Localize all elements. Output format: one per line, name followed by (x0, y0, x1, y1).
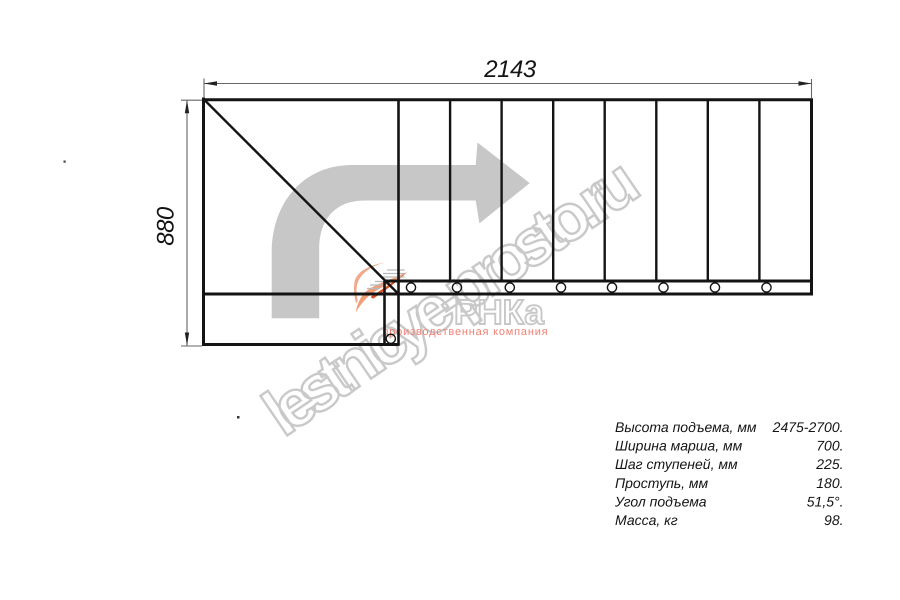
svg-text:2475-2700.: 2475-2700. (772, 419, 844, 435)
svg-text:700.: 700. (816, 438, 843, 454)
svg-text:Шаг ступеней, мм: Шаг ступеней, мм (615, 456, 738, 472)
svg-text:51,5°.: 51,5°. (807, 493, 844, 509)
svg-text:180.: 180. (816, 475, 843, 491)
svg-text:Масса, кг: Масса, кг (615, 512, 678, 528)
svg-text:Угол подъема: Угол подъема (614, 493, 707, 509)
svg-text:2143: 2143 (483, 56, 537, 83)
svg-text:Проступь, мм: Проступь, мм (615, 475, 709, 491)
svg-text:производственная компания: производственная компания (383, 326, 549, 338)
svg-text:Высота подъема, мм: Высота подъема, мм (615, 419, 757, 435)
svg-text:225.: 225. (815, 456, 843, 472)
svg-text:880: 880 (153, 206, 180, 246)
svg-text:98.: 98. (824, 512, 843, 528)
svg-text:Ширина марша, мм: Ширина марша, мм (615, 438, 743, 454)
